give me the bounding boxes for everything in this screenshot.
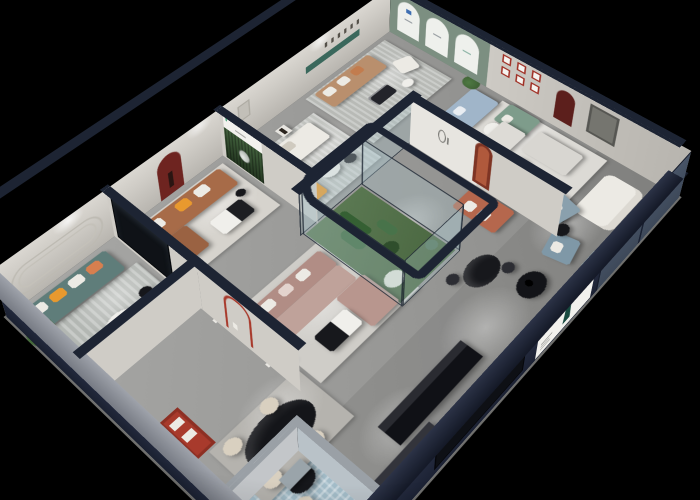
red-frame-picture [502,54,512,67]
brand-mark-text [447,138,449,146]
dark-red-arch-niche [553,87,576,127]
red-frame-picture [501,66,510,79]
arch-panel-text [463,49,471,55]
red-frame-picture [515,74,525,87]
red-frame-picture [531,70,541,83]
brand-mark-squiggle [438,128,446,144]
arch-panel-text [433,33,441,39]
arch-panel-logo [406,9,411,16]
arch-panel-text [405,18,413,24]
niche-sculpture [168,170,174,188]
render-canvas [0,0,700,500]
scene-3d [0,0,700,500]
red-frame-picture [530,82,540,95]
floorplan [7,31,680,500]
red-frame-picture [517,62,527,75]
